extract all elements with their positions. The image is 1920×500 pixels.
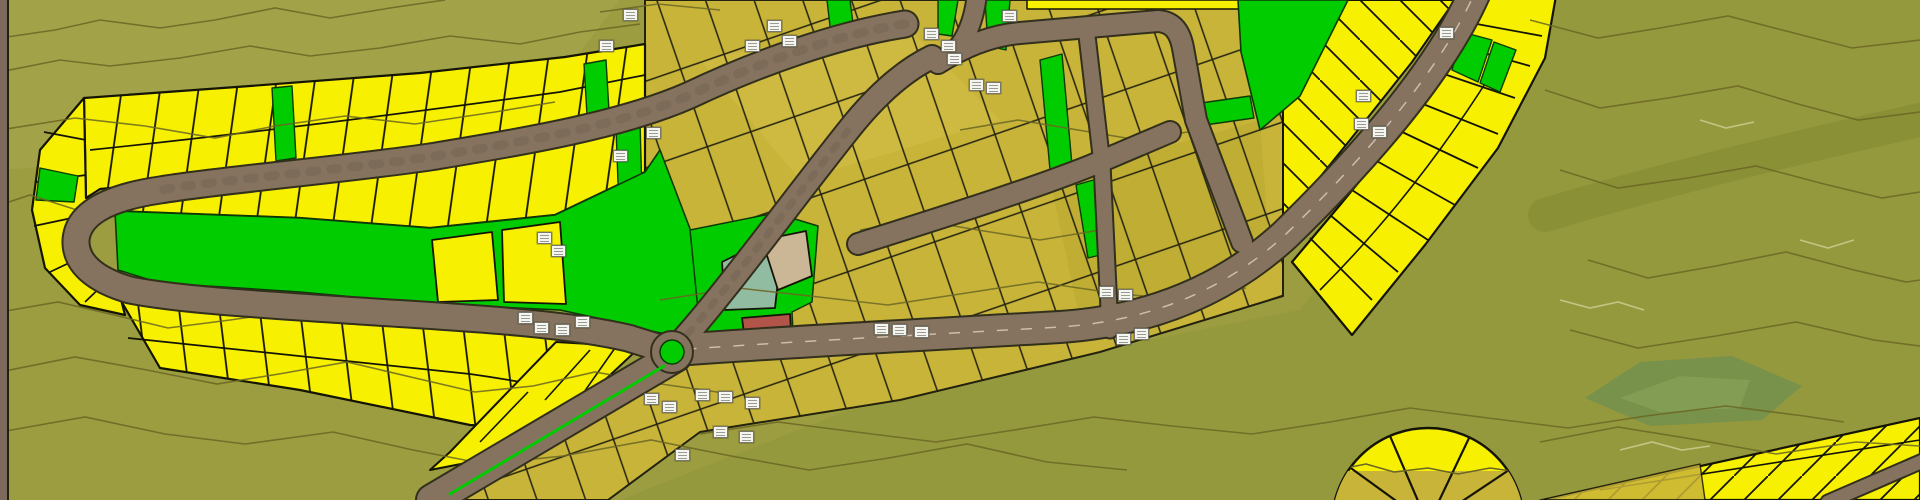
map-canvas[interactable] [0, 0, 1920, 500]
island-lot [502, 222, 566, 304]
edge-road-left [0, 0, 8, 500]
island-lot [432, 232, 498, 302]
plat-map-svg [0, 0, 1920, 500]
roundabout [651, 331, 693, 373]
